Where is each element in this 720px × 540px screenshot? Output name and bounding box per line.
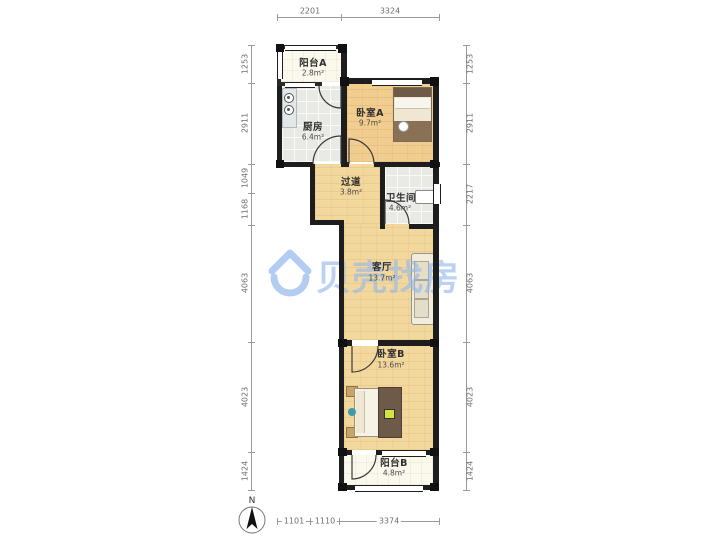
dim-value-left-1: 2911	[241, 113, 250, 133]
dim-tick	[463, 225, 470, 226]
window	[372, 79, 422, 86]
wall-post	[430, 339, 439, 347]
dim-line-left	[251, 45, 252, 490]
dim-tick	[248, 452, 255, 453]
dim-tick	[339, 518, 340, 525]
watermark-logo-icon	[272, 253, 308, 293]
dim-tick	[248, 83, 255, 84]
room-area-hallway: 3.8m²	[340, 188, 362, 197]
room-area-balcony-a: 2.8m²	[302, 69, 324, 78]
room-label-living: 客厅	[372, 259, 392, 273]
room-area-bedroom-b: 13.6m²	[377, 361, 404, 370]
room-label-balcony-a: 阳台A	[299, 55, 327, 69]
room-label-bedroom-a: 卧室A	[356, 105, 384, 119]
dim-tick	[248, 342, 255, 343]
dim-tick	[277, 518, 278, 525]
dim-value-left-2: 1049	[241, 168, 250, 188]
dim-value-right-5: 1424	[466, 461, 475, 481]
door-arc-balcony-a	[319, 86, 341, 108]
door-arc-bedroom-b	[352, 346, 378, 372]
wall-post	[338, 448, 347, 456]
dim-value-left-5: 4023	[241, 387, 250, 407]
door-arc-bedroom-a	[349, 139, 374, 164]
wall-post	[276, 44, 284, 52]
wall-post	[430, 77, 439, 86]
wall-post	[276, 160, 284, 168]
window	[285, 45, 336, 51]
wall-post	[338, 339, 347, 347]
dim-tick	[248, 164, 255, 165]
room-label-bathroom: 卫生间	[386, 190, 416, 204]
dim-value-right-4: 4023	[466, 387, 475, 407]
floorplan-canvas: 贝壳找房	[0, 0, 720, 540]
dim-tick	[463, 83, 470, 84]
wall-post	[338, 483, 347, 491]
dim-tick	[248, 490, 255, 491]
room-area-kitchen: 6.4m²	[302, 133, 324, 142]
dim-value-top-1: 3324	[380, 7, 400, 16]
dim-tick	[463, 490, 470, 491]
dim-tick	[439, 518, 440, 525]
dim-tick	[277, 14, 278, 21]
dim-tick	[341, 14, 342, 21]
dim-value-left-4: 4063	[241, 273, 250, 293]
dim-tick	[463, 452, 470, 453]
wall-post	[430, 160, 439, 168]
window	[433, 184, 441, 204]
dim-value-right-0: 1253	[466, 54, 475, 74]
wall-post	[340, 77, 349, 86]
dim-line-top	[277, 17, 439, 18]
room-label-kitchen: 厨房	[303, 119, 323, 133]
dim-value-right-3: 4063	[466, 273, 475, 293]
room-label-hallway: 过道	[341, 174, 361, 188]
dim-tick	[310, 518, 311, 525]
dim-value-top-0: 2201	[300, 7, 320, 16]
dim-tick	[463, 342, 470, 343]
dim-tick	[248, 193, 255, 194]
dim-value-bottom-1: 1110	[313, 517, 337, 526]
dim-tick	[248, 45, 255, 46]
wall-post	[430, 483, 439, 491]
dim-value-bottom-0: 1101	[282, 517, 306, 526]
room-area-balcony-b: 4.8m²	[383, 469, 405, 478]
room-label-bedroom-b: 卧室B	[377, 346, 405, 360]
doors-and-symbols-layer	[0, 0, 720, 540]
dim-value-right-1: 2911	[466, 113, 475, 133]
dim-value-right-2: 2217	[466, 184, 475, 204]
window	[355, 485, 423, 492]
door-arc-balcony-b	[352, 455, 376, 479]
wall-post	[430, 448, 439, 456]
room-area-bathroom: 4.6m²	[389, 204, 411, 213]
dim-value-bottom-2: 3374	[377, 517, 401, 526]
dim-tick	[463, 164, 470, 165]
room-area-living: 13.7m²	[368, 274, 395, 283]
dim-value-left-6: 1424	[241, 461, 250, 481]
dim-tick	[439, 14, 440, 21]
dim-line-right	[466, 45, 467, 490]
window	[285, 82, 315, 88]
dim-value-left-3: 1168	[241, 199, 250, 219]
wall-post	[338, 44, 347, 53]
window	[277, 52, 283, 79]
dim-tick	[463, 45, 470, 46]
room-area-bedroom-a: 9.7m²	[359, 119, 381, 128]
dim-value-left-0: 1253	[241, 54, 250, 74]
north-arrow-icon	[239, 507, 265, 533]
room-label-balcony-b: 阳台B	[380, 455, 408, 469]
compass-label: N	[249, 496, 256, 506]
dim-tick	[248, 225, 255, 226]
